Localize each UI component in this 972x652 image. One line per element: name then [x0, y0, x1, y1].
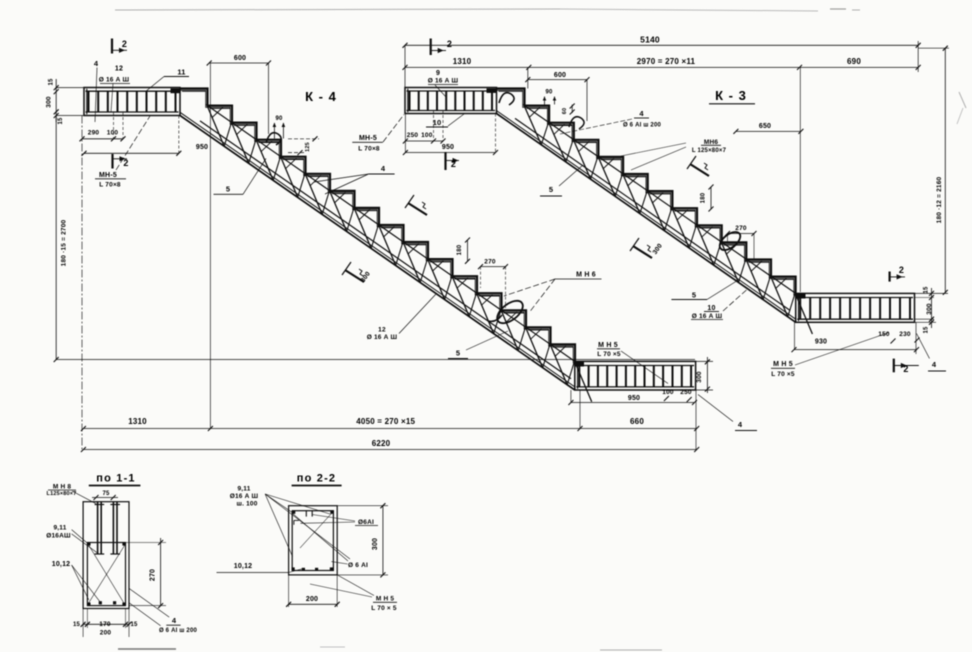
svg-text:МН-5: МН-5 [99, 172, 117, 179]
svg-text:180 ·12 = 2160: 180 ·12 = 2160 [936, 176, 943, 223]
svg-text:Ø6АІ: Ø6АІ [358, 519, 374, 526]
svg-text:15: 15 [924, 326, 930, 334]
svg-text:1310: 1310 [453, 57, 472, 66]
svg-text:Ø 6 АІ ш 200: Ø 6 АІ ш 200 [623, 123, 662, 129]
svg-text:170: 170 [99, 621, 111, 628]
svg-text:15: 15 [73, 622, 81, 628]
svg-text:60: 60 [562, 108, 568, 115]
svg-text:10: 10 [707, 305, 715, 312]
svg-text:L 70×8: L 70×8 [358, 146, 380, 153]
svg-text:930: 930 [815, 339, 827, 346]
svg-text:Ø 6 АІ ш 200: Ø 6 АІ ш 200 [159, 628, 198, 634]
svg-text:4: 4 [94, 59, 99, 68]
svg-text:МН-5: МН-5 [359, 135, 377, 142]
svg-text:L125×80×7: L125×80×7 [47, 491, 77, 497]
svg-text:90: 90 [275, 116, 283, 122]
svg-text:L 70 ×5: L 70 ×5 [597, 351, 621, 358]
svg-text:М Н 5: М Н 5 [376, 596, 395, 603]
svg-text:950: 950 [442, 144, 454, 151]
svg-text:10,12: 10,12 [234, 563, 253, 570]
svg-text:4: 4 [932, 360, 937, 369]
svg-text:100: 100 [662, 389, 674, 396]
svg-text:250: 250 [407, 132, 419, 139]
svg-text:200: 200 [100, 630, 112, 637]
svg-text:1310: 1310 [128, 417, 147, 426]
svg-text:300: 300 [652, 242, 664, 256]
svg-text:950: 950 [628, 395, 640, 402]
svg-text:4: 4 [738, 420, 743, 429]
svg-text:6220: 6220 [372, 439, 391, 448]
svg-text:К - 4: К - 4 [305, 89, 337, 104]
svg-text:по 1-1: по 1-1 [96, 473, 136, 485]
svg-text:15: 15 [924, 286, 930, 294]
svg-text:Ø 16 А Ш: Ø 16 А Ш [692, 313, 723, 320]
svg-text:600: 600 [234, 55, 246, 62]
svg-text:2: 2 [451, 159, 456, 169]
svg-text:5: 5 [226, 185, 230, 194]
svg-text:К - 3: К - 3 [715, 88, 747, 103]
svg-text:2: 2 [123, 158, 128, 168]
svg-text:4: 4 [639, 109, 644, 118]
svg-text:75: 75 [102, 491, 110, 497]
svg-text:2: 2 [899, 265, 904, 275]
svg-text:9: 9 [436, 70, 440, 77]
svg-text:300: 300 [926, 303, 933, 315]
svg-text:L 125×80×7: L 125×80×7 [692, 148, 727, 154]
svg-text:9,11: 9,11 [237, 486, 250, 493]
svg-text:2: 2 [447, 39, 452, 49]
svg-text:11: 11 [177, 68, 185, 77]
svg-text:690: 690 [847, 57, 861, 66]
svg-text:270: 270 [484, 259, 496, 266]
svg-text:270: 270 [150, 569, 157, 581]
svg-text:М Н 5: М Н 5 [598, 342, 618, 349]
svg-text:Ø16 А Ш: Ø16 А Ш [230, 493, 259, 500]
svg-text:650: 650 [759, 123, 771, 130]
svg-text:по 2-2: по 2-2 [297, 473, 337, 485]
svg-text:100: 100 [107, 130, 119, 137]
svg-text:90: 90 [545, 90, 553, 96]
svg-text:180 ·15 = 2700: 180 ·15 = 2700 [61, 219, 68, 266]
svg-text:Ø 16 А Ш: Ø 16 А Ш [99, 77, 130, 84]
svg-text:15: 15 [130, 622, 138, 628]
svg-text:180: 180 [457, 244, 463, 255]
svg-text:Ø 6 АІ: Ø 6 АІ [348, 562, 368, 569]
svg-text:5140: 5140 [640, 35, 660, 45]
svg-text:Ø16АШ: Ø16АШ [46, 533, 71, 540]
svg-text:950: 950 [196, 144, 208, 151]
svg-text:100: 100 [421, 132, 433, 139]
svg-text:Ø 16 А Ш: Ø 16 А Ш [367, 334, 398, 341]
svg-text:300: 300 [372, 538, 379, 550]
svg-text:270: 270 [735, 225, 747, 232]
svg-text:9,11: 9,11 [53, 525, 66, 532]
svg-text:300: 300 [46, 96, 53, 108]
svg-text:10: 10 [433, 118, 442, 127]
svg-text:2970 = 270 ×11: 2970 = 270 ×11 [637, 57, 696, 66]
svg-text:290: 290 [88, 130, 100, 137]
svg-text:5: 5 [456, 349, 460, 358]
svg-text:L 70 ×5: L 70 ×5 [771, 371, 795, 378]
svg-text:250: 250 [680, 389, 692, 396]
svg-text:660: 660 [630, 417, 644, 426]
svg-text:300: 300 [696, 371, 703, 383]
svg-text:4: 4 [172, 616, 177, 625]
svg-text:Ø 16 А Ш: Ø 16 А Ш [428, 78, 459, 85]
svg-text:ш. 100: ш. 100 [236, 501, 257, 508]
svg-text:180: 180 [701, 192, 707, 203]
svg-text:15: 15 [58, 117, 64, 125]
svg-text:М Н 6: М Н 6 [576, 272, 596, 279]
svg-text:15: 15 [49, 78, 55, 86]
svg-text:М Н 8: М Н 8 [53, 484, 72, 491]
svg-text:2: 2 [122, 39, 127, 49]
svg-text:230: 230 [899, 331, 911, 338]
svg-text:12: 12 [378, 327, 386, 334]
svg-text:600: 600 [554, 72, 566, 79]
svg-text:10,12: 10,12 [52, 561, 71, 568]
svg-text:5: 5 [549, 185, 553, 194]
svg-text:4050 = 270 ×15: 4050 = 270 ×15 [356, 417, 415, 426]
svg-text:М Н 5: М Н 5 [773, 361, 793, 368]
svg-text:125: 125 [305, 142, 311, 152]
svg-text:4: 4 [381, 164, 386, 173]
svg-text:5: 5 [692, 291, 696, 300]
svg-text:200: 200 [306, 596, 318, 603]
svg-text:2: 2 [903, 364, 908, 374]
svg-text:L 70×8: L 70×8 [99, 182, 121, 189]
svg-text:12: 12 [115, 66, 123, 73]
svg-text:L 70 × 5: L 70 × 5 [371, 605, 397, 612]
